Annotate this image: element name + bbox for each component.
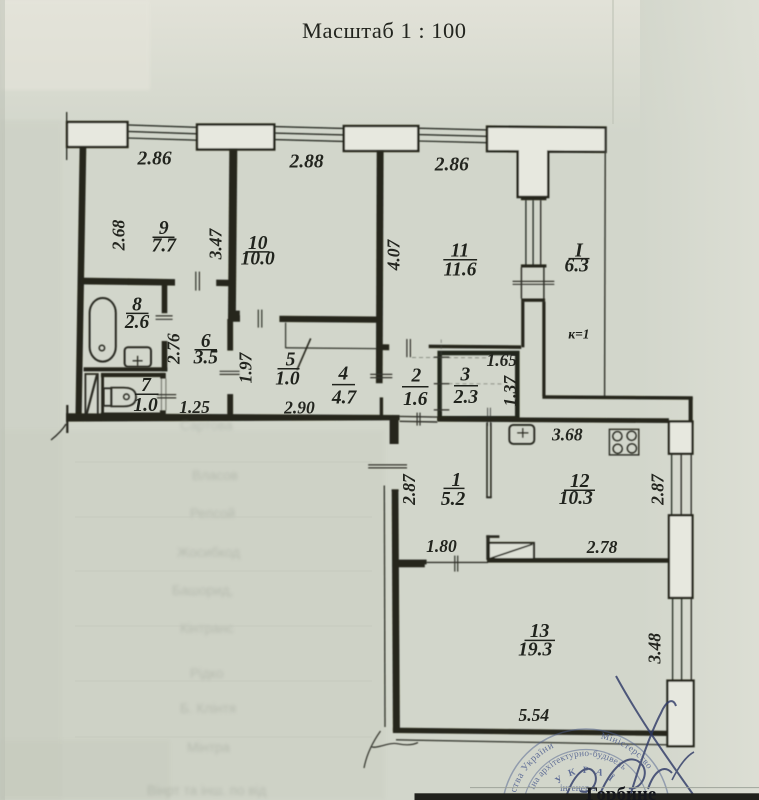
svg-text:6.3: 6.3 (565, 255, 590, 276)
svg-text:2.86: 2.86 (434, 155, 469, 176)
svg-text:10.3: 10.3 (559, 488, 593, 509)
svg-text:7.7: 7.7 (152, 236, 178, 257)
svg-text:Башорид,: Башорид, (172, 583, 233, 598)
svg-text:Б. Клінтя: Б. Клінтя (180, 701, 236, 716)
svg-text:1.37: 1.37 (500, 375, 520, 407)
svg-text:2.68: 2.68 (109, 219, 129, 251)
svg-text:2: 2 (411, 366, 422, 387)
svg-text:2.78: 2.78 (586, 537, 618, 557)
svg-text:к=1: к=1 (568, 327, 589, 342)
svg-text:2.87: 2.87 (647, 473, 667, 506)
svg-text:Кінтранс: Кінтранс (180, 621, 234, 636)
svg-text:1.80: 1.80 (426, 536, 457, 556)
svg-text:Масштаб 1 : 100: Масштаб 1 : 100 (302, 18, 466, 43)
svg-text:3.68: 3.68 (551, 425, 583, 445)
svg-text:1.97: 1.97 (236, 351, 256, 383)
svg-text:Власов: Власов (192, 468, 238, 483)
svg-text:5: 5 (286, 350, 296, 371)
svg-text:Жосибкод: Жосибкод (177, 545, 240, 560)
svg-text:2.6: 2.6 (124, 312, 150, 333)
svg-text:11: 11 (451, 240, 469, 261)
svg-text:4: 4 (338, 363, 349, 384)
svg-text:3: 3 (460, 365, 471, 386)
svg-text:2.76: 2.76 (164, 333, 184, 365)
svg-text:2.87: 2.87 (399, 473, 419, 506)
svg-text:2.3: 2.3 (453, 387, 479, 408)
svg-text:1.65: 1.65 (486, 350, 517, 370)
svg-text:Репсой: Репсой (190, 506, 235, 521)
svg-text:3.5: 3.5 (193, 348, 219, 369)
svg-text:Мінтра: Мінтра (187, 740, 230, 755)
svg-text:1.6: 1.6 (403, 389, 428, 410)
svg-text:Рідко: Рідко (190, 666, 223, 681)
svg-text:3.47: 3.47 (206, 227, 226, 260)
svg-text:11.6: 11.6 (443, 260, 476, 281)
svg-text:19.3: 19.3 (518, 640, 552, 661)
svg-text:1.0: 1.0 (275, 369, 300, 390)
svg-text:Горбине: Горбине (586, 784, 656, 800)
svg-text:5.2: 5.2 (441, 489, 466, 510)
svg-text:Сартова: Сартова (180, 418, 233, 433)
svg-text:4.7: 4.7 (331, 388, 358, 409)
svg-text:4.07: 4.07 (384, 238, 404, 271)
svg-text:1.0: 1.0 (133, 395, 158, 416)
svg-text:2.90: 2.90 (283, 398, 315, 418)
svg-text:7: 7 (141, 375, 152, 396)
svg-text:Вінрт та інш. по від: Вінрт та інш. по від (147, 783, 266, 798)
svg-text:1.25: 1.25 (179, 397, 210, 417)
svg-text:2.86: 2.86 (136, 149, 171, 170)
svg-text:5.54: 5.54 (518, 705, 549, 725)
svg-text:10.0: 10.0 (241, 249, 275, 270)
svg-text:2.88: 2.88 (288, 152, 323, 173)
svg-text:3.48: 3.48 (645, 633, 665, 665)
